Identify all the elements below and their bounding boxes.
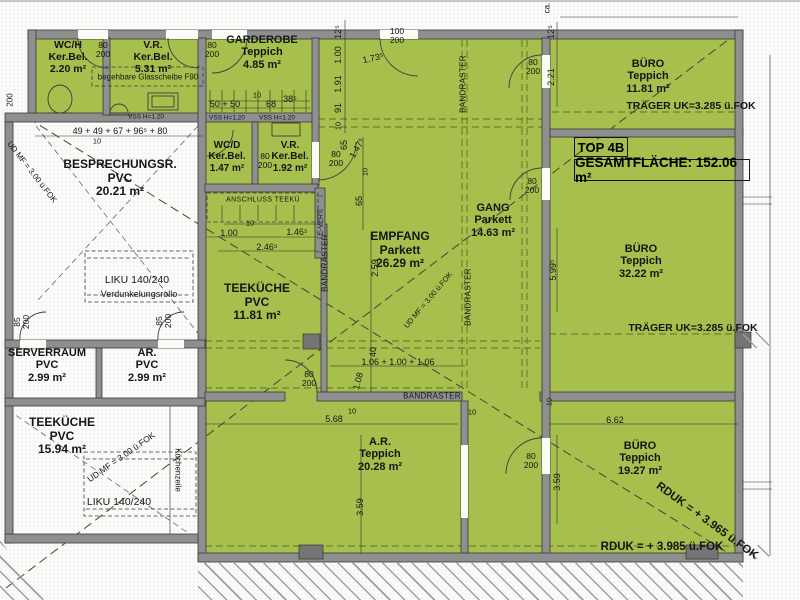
dim-text: 10 <box>246 219 254 228</box>
room-label-besprechung: BESPRECHUNGSR. PVC 20.21 m² <box>63 158 176 199</box>
wall-stub-hatch <box>743 332 769 348</box>
dim-text: 10 <box>93 137 101 146</box>
door-size-label: 80200 <box>302 370 316 388</box>
room-label-buero-top: BÜRO Teppich 11.81 m² <box>626 58 669 95</box>
room-label-vr2: V.R. Ker.Bel. 1.92 m² <box>271 140 308 174</box>
dim-text: 1.46⁵ <box>286 227 307 237</box>
door-size-label: 100200 <box>390 27 404 45</box>
dim-text: 5.68 <box>325 414 343 424</box>
liku-note: LIKU 140/240 <box>87 496 151 508</box>
dim-text: 12⁵ <box>546 25 556 39</box>
floorplan-geometry <box>0 0 800 600</box>
vss-note: VSS H=1.20 <box>259 115 295 122</box>
room-floor: Ker.Bel. <box>48 52 87 64</box>
dim-text: 2.59 <box>370 259 380 277</box>
door-size-label: 80200 <box>525 177 539 195</box>
bandraster-note: BANDRASTER <box>459 55 468 113</box>
dim-text: 3.59 <box>355 498 365 516</box>
room-area: 2.20 m² <box>48 64 87 76</box>
dim-text: 10 <box>545 398 554 406</box>
dim-text: 6.62 <box>606 415 624 425</box>
dim-text: 91 <box>333 103 343 113</box>
unit-title-box: TOP 4B <box>574 137 628 157</box>
room-label-garderobe: GARDEROBE Teppich 4.85 m² <box>226 34 298 71</box>
evert-note: E-VERT. <box>318 209 325 236</box>
dim-text: 10 <box>348 407 356 416</box>
dim-text: 2.21 <box>546 68 556 86</box>
dim-text: 10 <box>334 122 343 130</box>
door-size-label: 85200 <box>155 314 173 328</box>
room-label-teekueche-11: TEEKÜCHE PVC 11.81 m² <box>224 282 290 323</box>
room-label-ar-klein: AR. PVC 2.99 m² <box>128 347 166 384</box>
room-label-ar: A.R. Teppich 20.28 m² <box>358 436 402 473</box>
dim-text: 10 <box>253 91 261 100</box>
door-size-label: 80200 <box>205 41 219 59</box>
door-size-label: 80200 <box>258 152 272 170</box>
floorplan: TOP 4B GESAMTFLÄCHE: 152.06 m² WC/H Ker.… <box>0 0 800 600</box>
glass-wall-note: begehbare Glasscheibe F90 <box>98 73 199 82</box>
traeger-note: TRÄGER UK=3.285 ü.FOK <box>626 100 755 112</box>
dim-text: 5.99⁵ <box>548 259 558 280</box>
anschluss-note: ANSCHLUSS TEEKÜ <box>226 197 300 204</box>
total-area: GESAMTFLÄCHE: 152.06 m² <box>575 155 749 185</box>
room-label-serverraum: SERVERRAUM PVC 2.99 m² <box>8 347 86 384</box>
rollo-note: Verdunkelungsrollo <box>101 289 178 299</box>
dim-text: 3.59 <box>552 473 562 491</box>
room-label-buero-mitte: BÜRO Teppich 32.22 m² <box>619 243 663 280</box>
dim-text: 1.00 <box>220 228 238 238</box>
liku-note: LIKU 140/240 <box>105 274 169 286</box>
door-size-label: 80200 <box>526 58 540 76</box>
bandraster-note: BANDRASTER <box>464 268 473 326</box>
dim-text: 49 + 49 + 67 + 96⁵ + 80 <box>73 126 168 136</box>
room-label-wch: WC/H Ker.Bel. 2.20 m² <box>48 40 87 76</box>
traeger-note: TRÄGER UK=3.285 ü.FOK <box>628 322 757 334</box>
dim-text: 2.46⁵ <box>256 242 277 252</box>
dim-text: 1.91 <box>333 75 343 93</box>
unit-title: TOP 4B <box>578 140 624 155</box>
dim-text: 38⁵ <box>283 94 297 104</box>
door-size-label: 80200 <box>96 41 110 59</box>
room-label-vr1: V.R. Ker.Bel. 5.31 m² <box>133 40 172 76</box>
door-size-label: 80200 <box>329 150 343 168</box>
room-label-wcd: WC/D Ker.Bel. 1.47 m² <box>208 140 245 174</box>
dim-text: 12⁵ <box>333 25 343 39</box>
dim-text: 40 <box>368 347 378 357</box>
rduk-note: RDUK = + 3.985 ü.FOK <box>601 541 724 553</box>
dim-text: 50 + 50 <box>210 99 240 109</box>
total-area-box: GESAMTFLÄCHE: 152.06 m² <box>574 159 750 181</box>
room-label-gang: GANG Parkett 14.63 m² <box>471 202 515 239</box>
dim-text: 10 <box>468 408 476 417</box>
dim-text: 200 <box>6 93 15 106</box>
room-label-buero-unten: BÜRO Teppich 19.27 m² <box>618 440 662 477</box>
dim-text: 65 <box>354 196 364 206</box>
bandraster-note: BANDRASTER <box>403 392 461 401</box>
dim-text: 10 <box>361 168 370 176</box>
kuechenzeile-note: Küchenzeile <box>174 448 183 492</box>
door-size-label: 85200 <box>13 315 31 329</box>
door-size-label: 80200 <box>524 452 538 470</box>
ca-note: ca. <box>543 3 552 14</box>
vss-note: VSS H=1.20 <box>128 114 164 121</box>
dim-text: 68 <box>266 99 276 109</box>
dim-text: 1.06 + 1.00 + 1.06 <box>361 357 434 367</box>
bandraster-note: BANDRASTER <box>321 234 330 292</box>
dim-text: 1.00 <box>333 46 343 64</box>
dim-text: 65 <box>339 140 349 150</box>
exterior-hatch <box>198 562 743 600</box>
room-label-teekueche-15: TEEKÜCHE PVC 15.94 m² <box>29 416 95 457</box>
vss-note: VSS H=1.20 <box>209 115 245 122</box>
